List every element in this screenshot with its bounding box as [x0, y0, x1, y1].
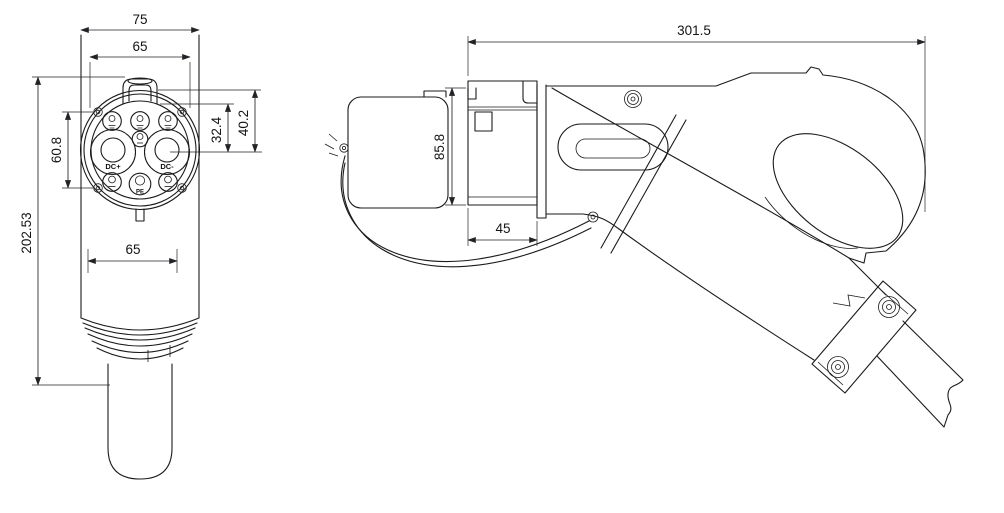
dim-coupler-height: 85.8 [432, 88, 466, 205]
connector-body [81, 35, 199, 479]
dim-text-32-4: 32.4 [209, 116, 224, 143]
pin-label-dc-plus: DC+ [105, 162, 121, 171]
dim-text-301-5: 301.5 [677, 23, 711, 38]
dim-body-width: 65 [88, 242, 177, 273]
pin-label-dc-minus: DC- [160, 162, 174, 171]
lanyard-cord [341, 156, 598, 267]
clamp-screw-lower [828, 357, 849, 378]
dim-overall-height: 202.53 [19, 77, 125, 385]
cable-sleeve [108, 364, 172, 479]
dim-text-65-top: 65 [132, 39, 147, 54]
signal-pins-top [103, 112, 178, 131]
dim-text-45: 45 [495, 221, 510, 236]
dim-face-width: 65 [90, 39, 190, 108]
dim-overall-width: 75 [81, 12, 199, 30]
handle-hole-inner-wall [765, 197, 858, 248]
dim-text-85-8: 85.8 [432, 134, 447, 160]
side-view: 301.5 85.8 45 [325, 23, 963, 427]
body-screw-top [625, 91, 642, 108]
pin-label-pe: PE [136, 190, 144, 196]
gun-body [546, 67, 963, 427]
front-view: DC+ DC- PE [19, 12, 262, 479]
dim-text-60-8: 60.8 [49, 137, 64, 163]
dc-plus-pin: DC+ [91, 130, 136, 175]
dim-text-75: 75 [132, 12, 147, 27]
key-nub [136, 209, 144, 221]
stadium-cutout [558, 124, 668, 170]
face-screws [94, 108, 187, 193]
technical-drawing-sheet: DC+ DC- PE [0, 0, 1004, 513]
drawing-canvas: DC+ DC- PE [0, 0, 1004, 513]
dim-text-202-53: 202.53 [19, 212, 34, 253]
dim-text-40-2: 40.2 [236, 110, 251, 136]
dim-text-65-bottom: 65 [125, 242, 140, 257]
coupler-nozzle [468, 81, 537, 205]
face-plate [537, 85, 546, 218]
clamp-screw-upper [879, 297, 900, 318]
dim-coupler-depth: 45 [468, 208, 537, 246]
